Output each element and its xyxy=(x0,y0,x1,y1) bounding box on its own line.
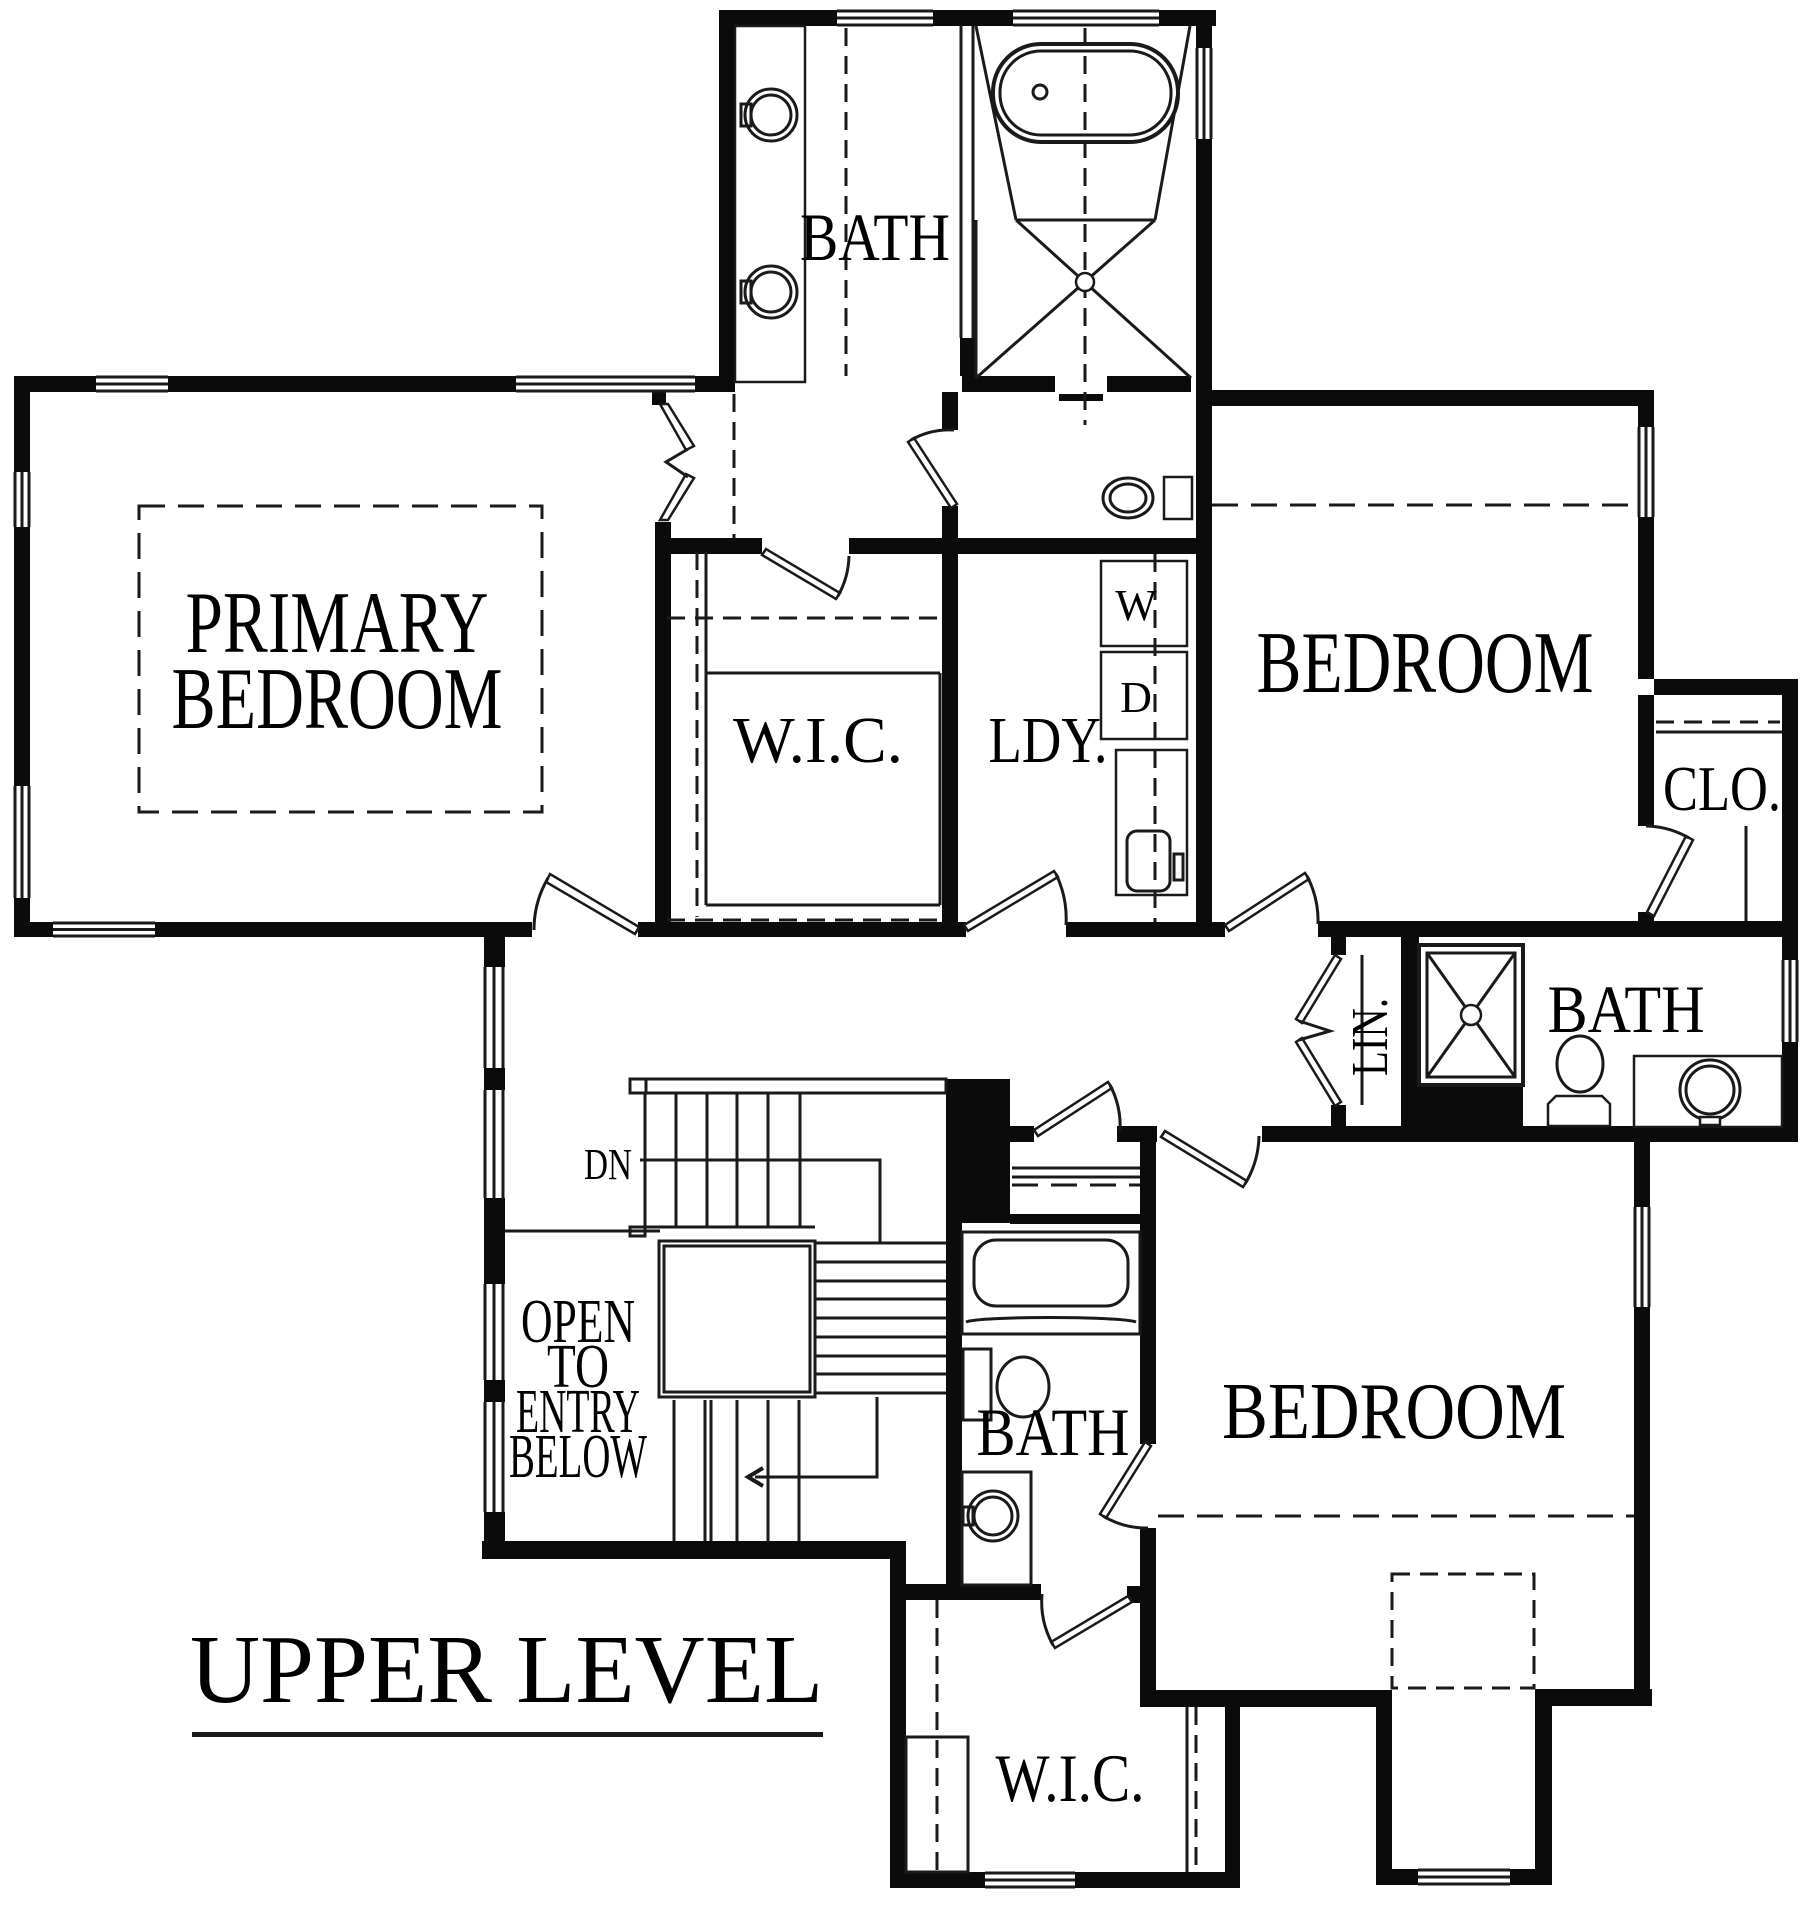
svg-text:W: W xyxy=(1115,581,1157,630)
svg-text:LDY.: LDY. xyxy=(989,704,1108,777)
svg-text:D: D xyxy=(1120,673,1152,722)
svg-text:BEDROOM: BEDROOM xyxy=(1257,615,1594,712)
svg-text:BEDROOM: BEDROOM xyxy=(1222,1368,1566,1456)
svg-text:BATH: BATH xyxy=(1548,971,1705,1047)
svg-text:LIN.: LIN. xyxy=(1342,998,1399,1076)
svg-text:BATH: BATH xyxy=(977,1394,1130,1470)
svg-text:W.I.C.: W.I.C. xyxy=(733,704,903,777)
svg-text:BEDROOM: BEDROOM xyxy=(172,651,503,748)
svg-text:DN: DN xyxy=(584,1140,632,1189)
svg-text:CLO.: CLO. xyxy=(1663,753,1781,824)
svg-text:UPPER LEVEL: UPPER LEVEL xyxy=(190,1616,823,1723)
svg-text:W.I.C.: W.I.C. xyxy=(996,1740,1145,1816)
svg-text:BELOW: BELOW xyxy=(509,1423,647,1491)
svg-text:BATH: BATH xyxy=(800,199,950,275)
